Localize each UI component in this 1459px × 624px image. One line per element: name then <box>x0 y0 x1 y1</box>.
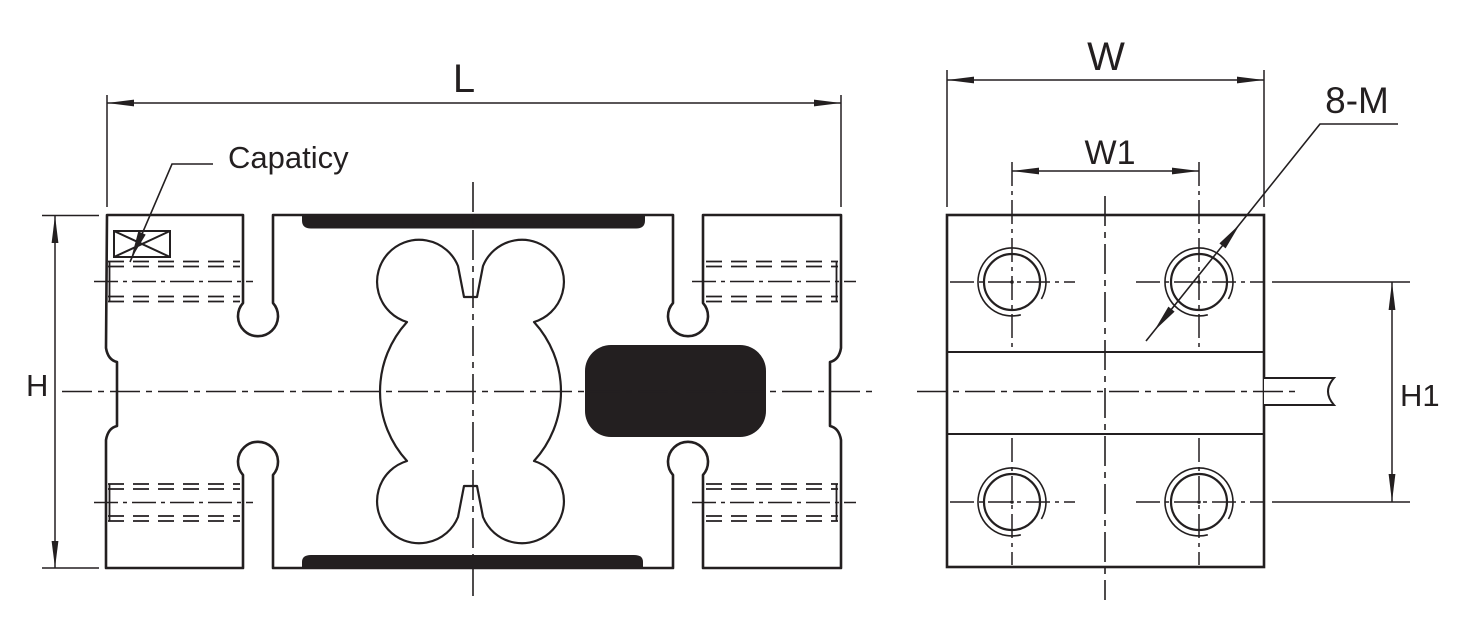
dimension-W-label: W <box>1087 35 1125 79</box>
dimension-L-label: L <box>453 57 475 101</box>
capacity-label: Capaticy <box>228 140 349 175</box>
dimension-W1: W1 <box>1012 134 1199 174</box>
dimension-W-arrow-left <box>947 77 974 84</box>
dimension-H-arrow-bottom <box>52 541 59 568</box>
dimension-L-arrow-right <box>814 100 841 107</box>
dimension-W: W <box>947 35 1264 207</box>
dimension-W1-arrow-left <box>1012 168 1039 175</box>
dimension-H-arrow-top <box>52 216 59 244</box>
dimension-W1-arrow-right <box>1172 168 1199 175</box>
dimension-W-arrow-right <box>1237 77 1264 84</box>
dimension-L-arrow-left <box>107 100 134 107</box>
dimension-H1-arrow-bottom <box>1389 474 1396 502</box>
dimension-L-extension-lines <box>107 95 841 207</box>
dimension-H1-label: H1 <box>1400 378 1440 413</box>
dimension-H-label: H <box>26 368 48 403</box>
drawing-page: Capaticy L H <box>0 0 1459 624</box>
end-view: W W1 H1 8-M <box>917 35 1440 600</box>
dimension-H1-arrow-top <box>1389 282 1396 310</box>
technical-drawing-canvas: Capaticy L H <box>0 0 1459 624</box>
dimension-W1-label: W1 <box>1085 134 1136 172</box>
side-view: Capaticy L H <box>26 57 878 600</box>
thread-callout-label: 8-M <box>1325 80 1389 121</box>
dimension-L: L <box>107 57 841 207</box>
